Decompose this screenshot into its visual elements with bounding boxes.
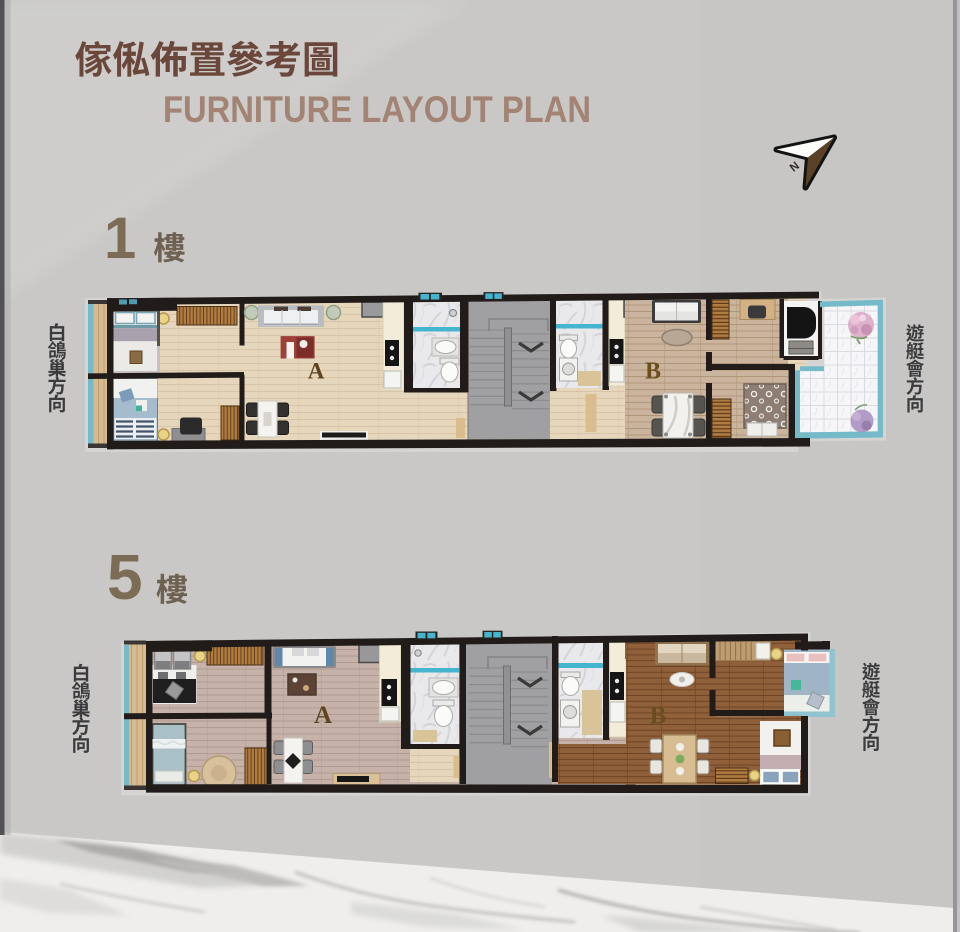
svg-text:B: B (645, 359, 661, 385)
svg-text:5: 5 (107, 541, 143, 613)
svg-text:A: A (308, 359, 325, 384)
svg-text:A: A (314, 702, 332, 729)
svg-text:FURNITURE LAYOUT PLAN: FURNITURE LAYOUT PLAN (163, 89, 591, 130)
svg-text:1: 1 (104, 206, 136, 271)
svg-text:B: B (650, 703, 667, 730)
